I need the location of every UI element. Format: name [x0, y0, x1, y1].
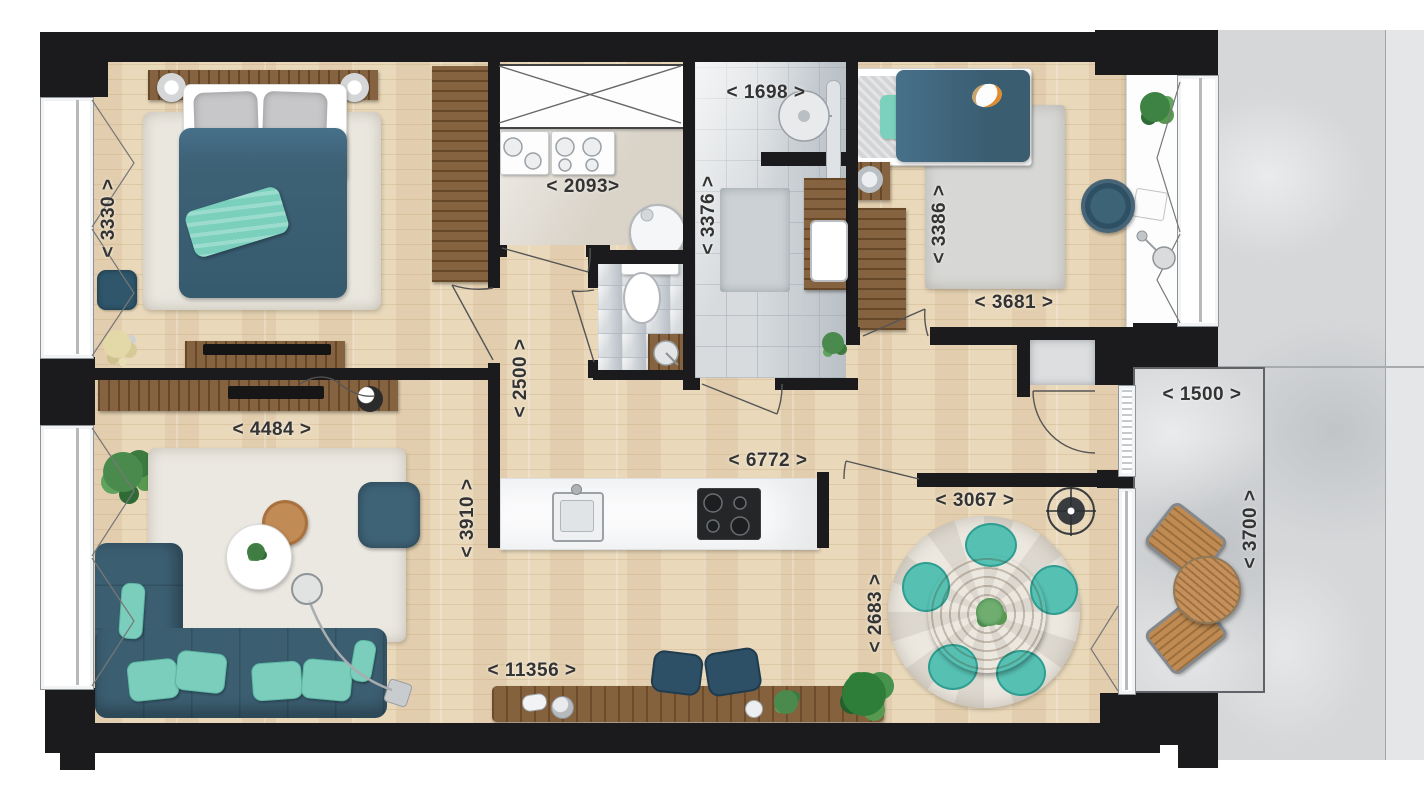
bench-plant	[774, 690, 798, 714]
kitchen-hob	[697, 488, 761, 540]
dimension-label-3330: < 3330 >	[97, 158, 121, 278]
wall-dining-north	[917, 473, 1097, 487]
window-living	[40, 425, 94, 690]
wall-bed2-west	[846, 32, 858, 327]
dimension-label-2093: < 2093>	[523, 175, 643, 199]
dimension-label-3376: < 3376 >	[697, 155, 721, 275]
kitchen-faucet	[571, 484, 582, 495]
dimension-label-11356: < 11356 >	[472, 659, 592, 683]
storage-closet	[497, 64, 687, 129]
dining-centerpiece	[976, 598, 1004, 626]
dryer	[551, 131, 615, 175]
neighbour-slab	[1386, 30, 1424, 760]
living-pouf	[358, 482, 420, 548]
laptop	[1132, 188, 1168, 222]
window-bedroom-1-glass	[76, 100, 79, 354]
coffee-table-plant	[247, 543, 265, 561]
dimension-label-6772: < 6772 >	[708, 449, 828, 473]
window-bedroom-2-glass	[1199, 78, 1202, 322]
wall-living-divider	[85, 368, 488, 380]
wall-counter-cap-right	[817, 472, 829, 548]
wall-entry-left	[1017, 340, 1030, 397]
washer	[500, 131, 549, 175]
bench-jar	[551, 696, 574, 719]
bedroom-2-lamp	[856, 166, 883, 193]
sofa-cushion-bolster-left	[118, 582, 146, 640]
wall-utility-south-left	[497, 245, 507, 257]
bench-bowl	[745, 700, 763, 718]
entry-niche	[1030, 340, 1095, 385]
wall-entry-right	[1095, 340, 1133, 385]
desk-chair	[1081, 179, 1135, 233]
bench-stool-2	[703, 646, 763, 698]
bedside-lamp-left	[157, 73, 186, 102]
bedroom-1-flowers	[103, 330, 131, 358]
kitchen-counter	[500, 478, 819, 550]
wall-entry-top	[1017, 327, 1133, 340]
wall-bed1-east-lower	[488, 363, 500, 548]
sofa-cushion-4	[300, 658, 353, 702]
wall-wc-north	[598, 250, 683, 264]
wall-bottom-right-block	[1100, 693, 1218, 745]
wall-corner-bottom-left-step	[60, 753, 95, 770]
wall-right-mid-block	[1133, 323, 1218, 367]
dimension-label-3910: < 3910 >	[456, 458, 480, 578]
window-bedroom-2	[1177, 75, 1219, 327]
dimension-label-3386: < 3386 >	[928, 164, 952, 284]
wc-corner-table	[648, 334, 683, 372]
floor-plan: < 3330 > < 1698 > < 2093> < 3376 > < 338…	[0, 0, 1424, 803]
wall-bathroom-stub	[761, 152, 856, 166]
bedroom-2-plant	[1140, 92, 1170, 122]
dimension-label-3067: < 3067 >	[915, 489, 1035, 513]
sofa-cushion-2	[174, 649, 228, 694]
wall-bed2-south-left	[846, 327, 860, 345]
window-bedroom-1	[40, 97, 94, 359]
wall-bathroom-south-right	[775, 378, 858, 390]
bedroom-2-wardrobe	[850, 208, 906, 330]
window-entry-grille	[1118, 385, 1136, 477]
hall-palm	[842, 672, 886, 716]
wall-bathroom-west	[683, 62, 695, 378]
living-tv	[228, 386, 324, 399]
living-plant	[103, 452, 143, 492]
bath-mat	[720, 188, 790, 292]
bedroom-1-tv	[203, 344, 331, 355]
dimension-label-1500: < 1500 >	[1142, 383, 1262, 407]
bathroom-plant	[822, 332, 844, 354]
sofa-cushion-1	[126, 657, 180, 702]
wall-top	[85, 32, 1135, 62]
bench-stool-1	[650, 649, 705, 697]
window-living-glass	[76, 428, 79, 685]
dimension-label-4484: < 4484 >	[212, 418, 332, 442]
balcony-table	[1173, 556, 1241, 624]
kitchen-sink-basin	[560, 500, 594, 532]
wall-bottom-right-step	[1178, 745, 1218, 768]
wall-bottom	[85, 723, 1160, 753]
wall-top-right-block	[1095, 30, 1218, 75]
dimension-label-1698: < 1698 >	[706, 81, 826, 105]
wall-wc-west-upper	[588, 250, 598, 288]
wall-wc-south	[593, 370, 685, 380]
sideboard-ball-lamp	[357, 386, 383, 412]
wall-bed2-south-right	[930, 327, 1017, 345]
vanity-sink	[810, 220, 848, 282]
wall-bathroom-south-left	[683, 378, 700, 390]
bed-2-duvet	[896, 70, 1030, 162]
dimension-label-3700: < 3700 >	[1239, 469, 1263, 589]
sofa-cushion-3	[251, 660, 304, 701]
dimension-label-3681: < 3681 >	[954, 291, 1074, 315]
window-balcony-door-glass	[1125, 491, 1128, 690]
bedroom-1-wardrobe	[432, 66, 490, 282]
dimension-label-2500: < 2500 >	[509, 318, 533, 438]
dimension-label-2683: < 2683 >	[864, 553, 888, 673]
wall-corner-top-left	[40, 32, 108, 97]
